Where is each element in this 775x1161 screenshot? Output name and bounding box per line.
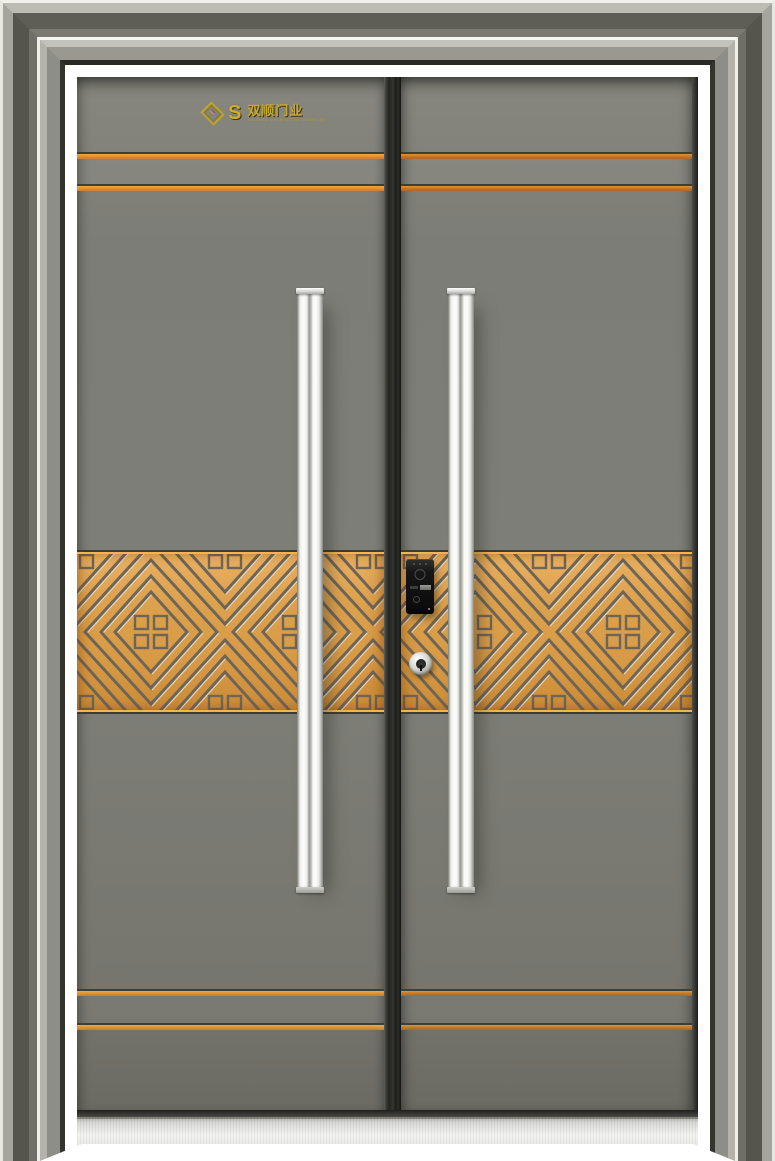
accent-line	[77, 989, 384, 996]
door-bottom-shadow	[77, 1110, 698, 1117]
brand-subtitle: SHUANG SHUN DOOR INDUSTRY	[247, 118, 326, 122]
security-door-photo: S 双顺门业 SHUANG SHUN DOOR INDUSTRY	[0, 0, 775, 1161]
lock-led	[428, 608, 430, 610]
floor-flare	[40, 1144, 735, 1161]
brand-symbol: S	[228, 103, 241, 123]
door-rebate-gap	[692, 77, 698, 1110]
accent-line	[77, 1023, 384, 1030]
decor-band	[77, 552, 384, 712]
accent-line	[401, 152, 692, 159]
left-door-panel: S 双顺门业 SHUANG SHUN DOOR INDUSTRY	[77, 77, 384, 1110]
lock-card-reader	[420, 585, 431, 590]
decor-band	[401, 552, 692, 712]
panel-strip	[77, 996, 384, 1023]
door-opening: S 双顺门业 SHUANG SHUN DOOR INDUSTRY	[77, 77, 698, 1161]
right-door-panel	[401, 77, 692, 1110]
accent-line	[77, 184, 384, 191]
lock-button	[413, 596, 420, 603]
panel-strip	[401, 159, 692, 184]
accent-line	[77, 152, 384, 159]
accent-line	[401, 184, 692, 191]
diamond-badge-icon	[200, 101, 224, 125]
lock-indicator-lights	[413, 563, 427, 565]
panel-strip	[77, 159, 384, 184]
brand-logo: S 双顺门业 SHUANG SHUN DOOR INDUSTRY	[203, 98, 333, 128]
astragal	[384, 77, 401, 1110]
keyhole	[409, 652, 432, 675]
door-handle-right	[448, 288, 474, 893]
door-handle-left	[297, 288, 323, 893]
lock-emblem-icon	[415, 569, 426, 580]
panel-strip	[401, 996, 692, 1023]
lock-slot	[410, 586, 418, 589]
brand-name: 双顺门业	[247, 104, 326, 117]
accent-line	[401, 1023, 692, 1030]
accent-line	[401, 989, 692, 996]
smart-lock	[406, 559, 434, 614]
